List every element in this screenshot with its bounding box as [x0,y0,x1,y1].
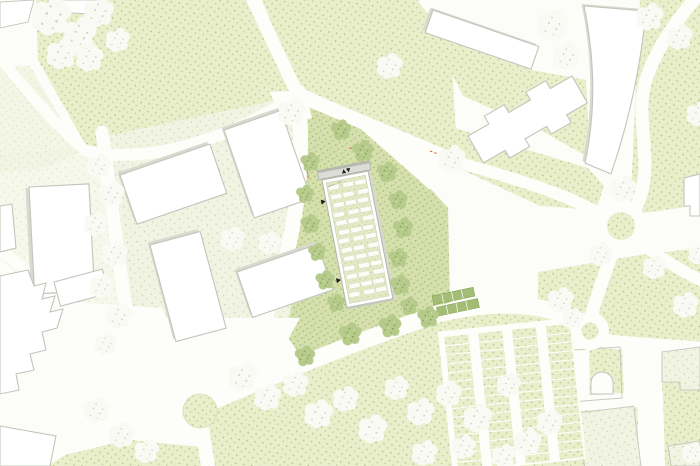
site-plan-canvas: ▲▼ [0,0,700,466]
site-plan-page: ▲▼ [0,0,700,466]
block-outline-2 [578,406,642,466]
southwest-circle-island [183,394,217,428]
road-southeast-vertical [650,395,652,466]
east-roundabout-island [607,212,635,240]
plot-southeast-gap [622,342,662,400]
southeast-roundabout-island [582,323,599,340]
apse-building [591,372,613,394]
